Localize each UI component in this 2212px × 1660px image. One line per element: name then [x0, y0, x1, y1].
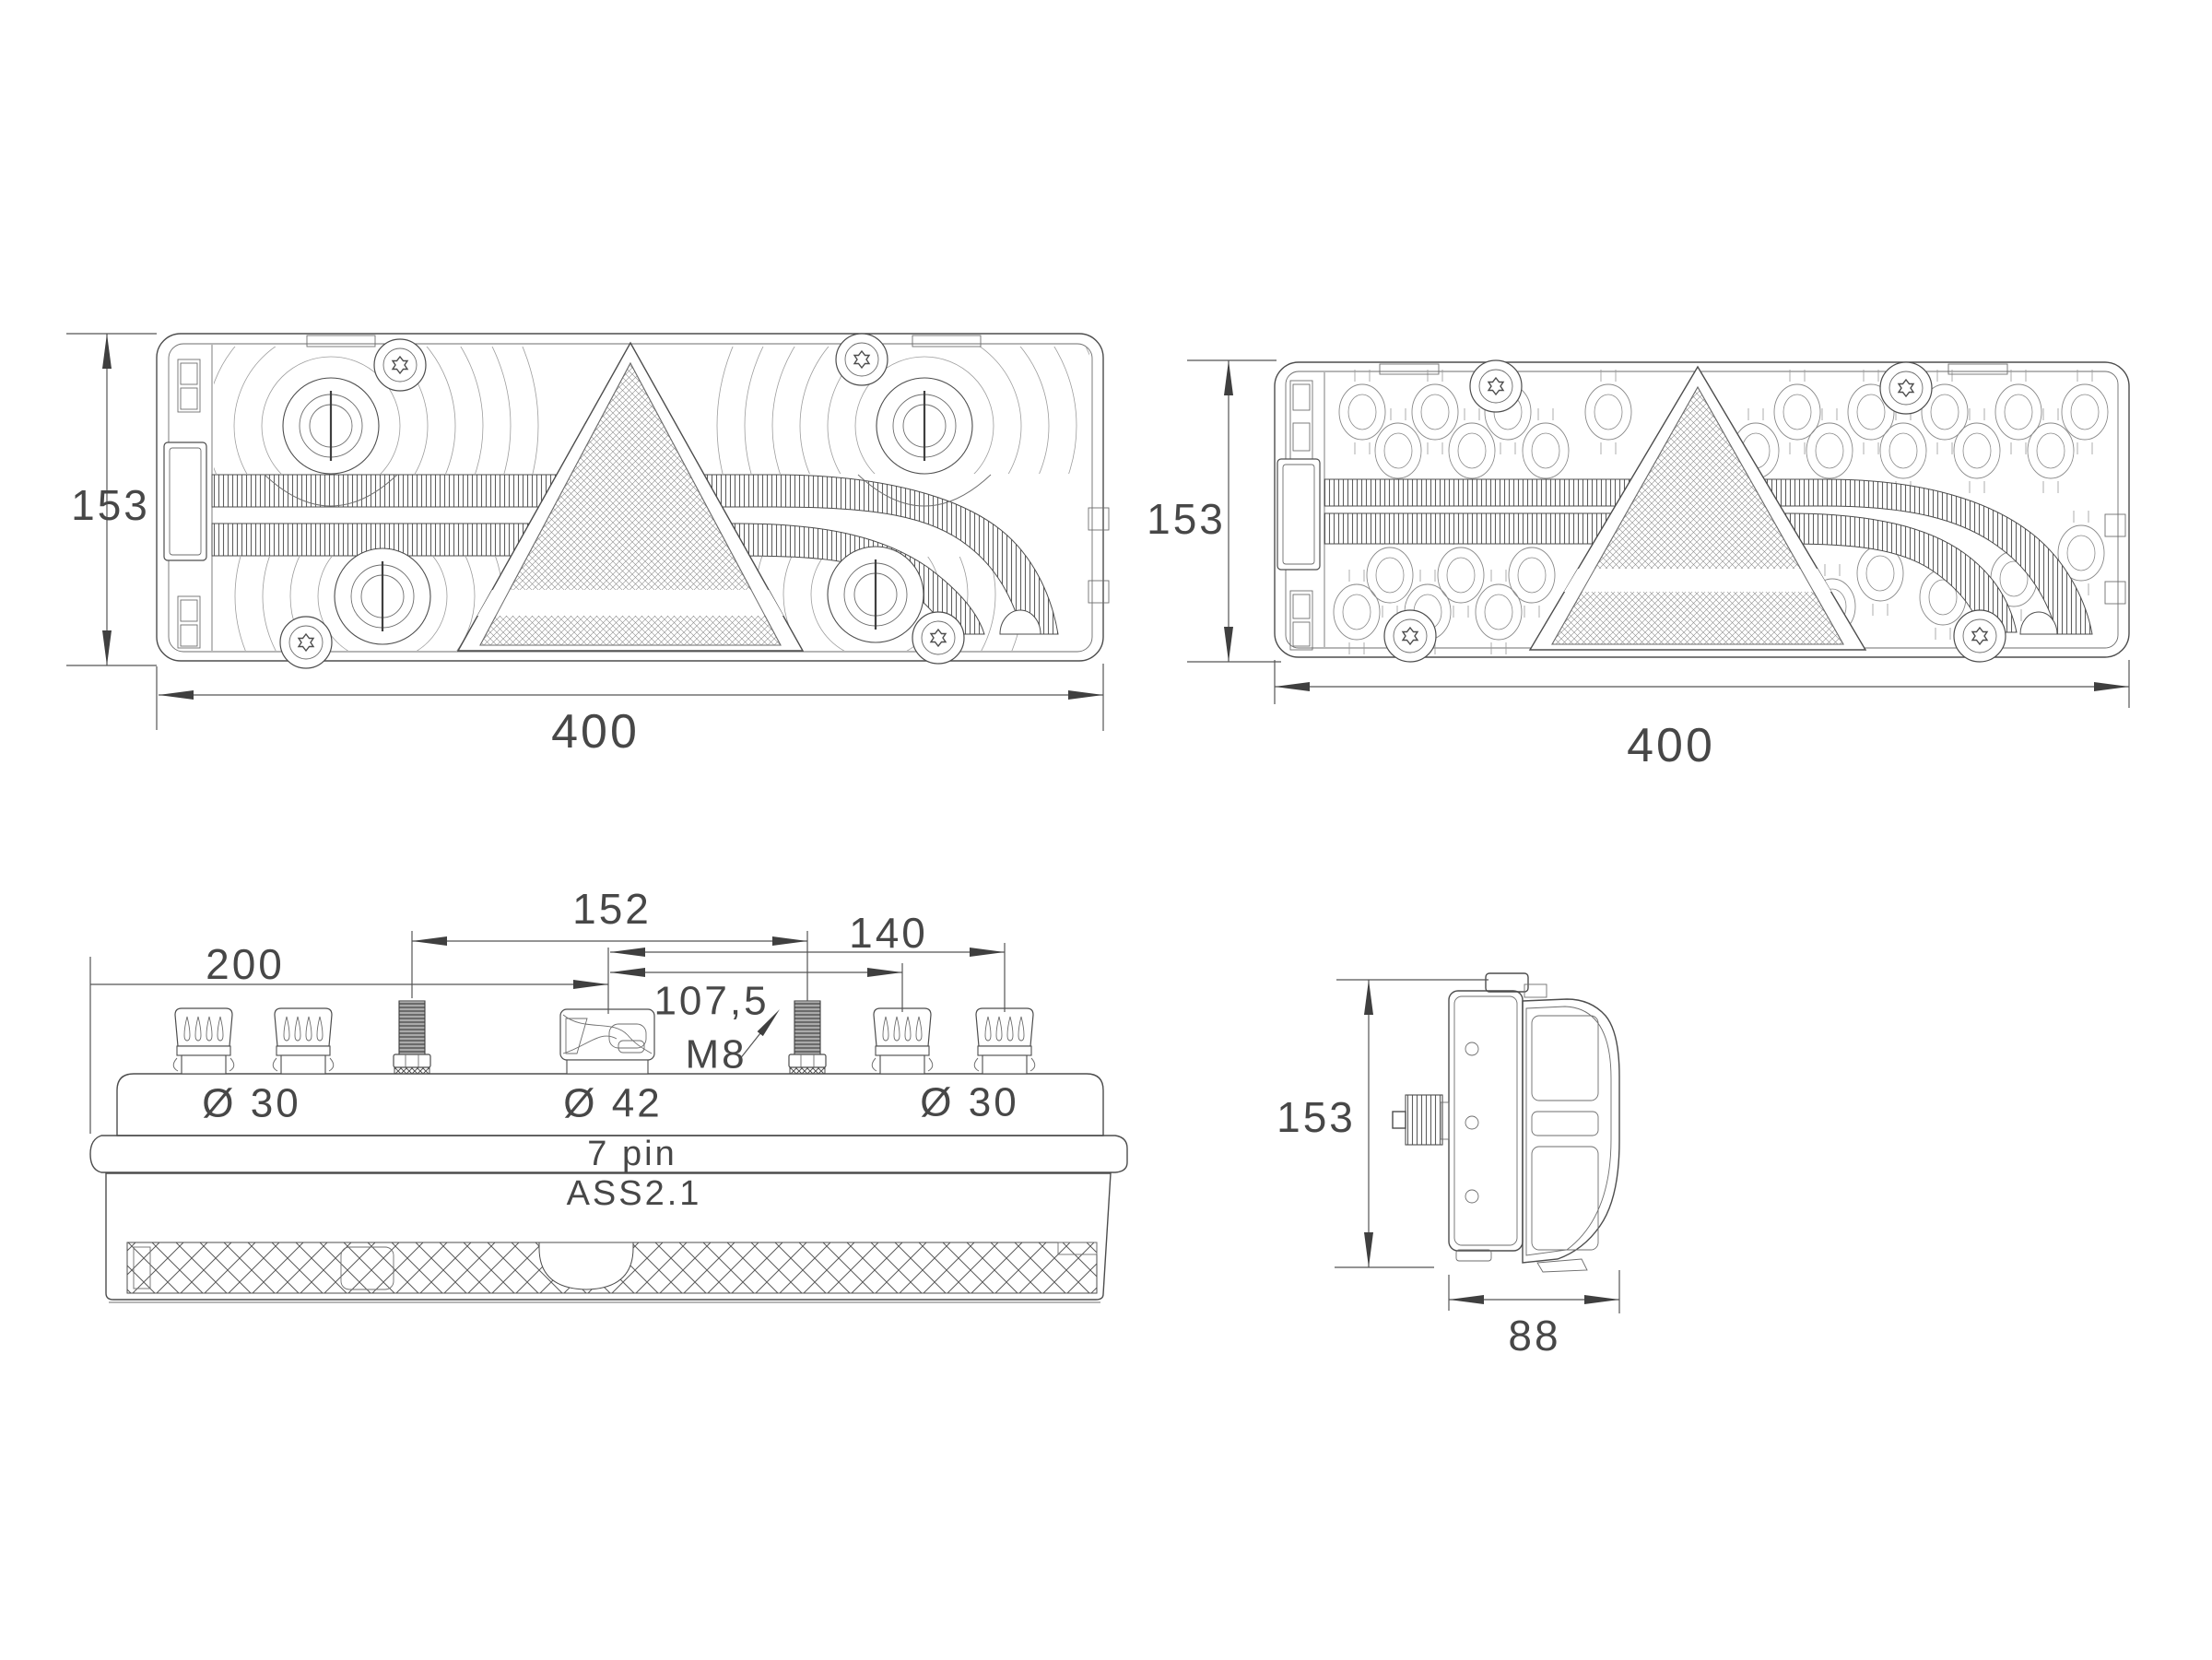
- drawing-sheet: 153 400: [0, 0, 2212, 1660]
- torx-screw-icon: [912, 612, 964, 664]
- front-view: [124, 218, 1132, 744]
- torx-screw-icon: [374, 339, 426, 391]
- rear-width-dimension: 400: [1275, 660, 2129, 772]
- rear-height-dimension: 153: [1147, 360, 1281, 662]
- warning-triangle: [1530, 367, 1865, 650]
- dim-152-label: 152: [572, 885, 652, 933]
- front-height-dimension: 153: [66, 334, 157, 665]
- torx-screw-icon: [836, 334, 888, 385]
- side-view: [1393, 973, 1619, 1272]
- bulb-reflector: [828, 547, 924, 642]
- cable-grommet: [974, 1008, 1035, 1074]
- connector-pin-label: 7 pin: [587, 1135, 677, 1173]
- side-bracket: [1277, 459, 1320, 570]
- technical-drawing: 153 400: [0, 0, 2212, 1660]
- front-height-label: 153: [71, 481, 150, 529]
- cable-grommet: [872, 1008, 933, 1074]
- rear-view: [1275, 360, 2129, 662]
- side-height-dimension: 153: [1277, 980, 1488, 1267]
- rear-height-label: 153: [1147, 495, 1226, 543]
- cable-grommet: [273, 1008, 334, 1074]
- dim-200-label: 200: [206, 940, 285, 988]
- assembly-label: ASS2.1: [567, 1174, 702, 1213]
- bulb-reflector: [877, 378, 972, 474]
- lens-strip: [127, 1242, 1097, 1293]
- torx-screw-icon: [1954, 610, 2006, 662]
- side-depth-label: 88: [1508, 1312, 1560, 1360]
- torx-screw-icon: [280, 617, 332, 668]
- side-height-label: 153: [1277, 1093, 1356, 1141]
- dim-152: 152: [412, 885, 807, 946]
- dia-30-left-label: Ø 30: [202, 1081, 300, 1126]
- side-depth-dimension: 88: [1449, 1270, 1619, 1360]
- front-width-label: 400: [551, 705, 640, 759]
- dia-42-label: Ø 42: [563, 1081, 662, 1126]
- torx-screw-icon: [1384, 610, 1436, 662]
- front-width-dimension: 400: [157, 664, 1103, 759]
- dia-30-right-label: Ø 30: [920, 1080, 1018, 1125]
- thread-label: M8: [685, 1032, 747, 1077]
- dim-107-5-label: 107,5: [653, 979, 769, 1024]
- mounting-bolt-m8: [394, 1001, 430, 1074]
- side-bracket: [164, 442, 206, 560]
- cable-grommet: [173, 1008, 234, 1074]
- pin-connector-stub: [1393, 1095, 1449, 1145]
- dim-200: 200: [90, 940, 608, 989]
- bulb-reflector: [335, 548, 430, 644]
- torx-screw-icon: [1880, 362, 1932, 414]
- torx-screw-icon: [1470, 360, 1522, 412]
- dim-140-label: 140: [849, 909, 928, 957]
- mounting-bolt-m8: [789, 1001, 826, 1074]
- dim-107-5: 107,5: [610, 968, 902, 1024]
- rear-width-label: 400: [1627, 719, 1715, 772]
- connector-socket-42: [560, 1009, 654, 1074]
- bulb-reflector: [283, 378, 379, 474]
